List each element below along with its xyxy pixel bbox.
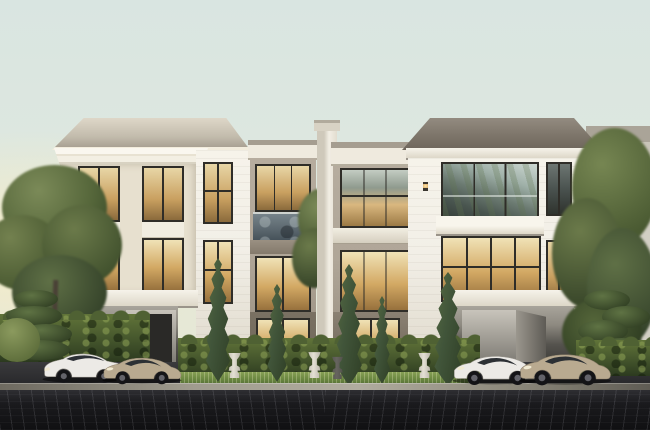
middle-right-two-storey-glazing <box>340 168 410 228</box>
sconce-light <box>423 184 428 188</box>
paver-joints-right <box>325 390 650 430</box>
bay-window-lower-right <box>142 238 184 292</box>
middle-right-band <box>333 228 413 244</box>
paver-joints-left <box>0 390 325 430</box>
left-house-roof <box>52 118 250 150</box>
wall-sconce <box>423 182 428 191</box>
right-house-cornice-band <box>436 216 544 236</box>
paver-driveway <box>0 390 650 430</box>
champagne-sports-car-left <box>100 346 184 386</box>
champagne-grand-tourer-right <box>516 342 614 386</box>
right-house-balcony-glazing <box>441 162 539 218</box>
chimney-cap <box>314 120 340 131</box>
bay-window-upper-right <box>142 166 184 222</box>
middle-left-unit-fascia <box>248 140 318 160</box>
bay-spandrel-right <box>142 222 184 238</box>
left-house-tall-window-upper <box>203 162 233 224</box>
architectural-rendering-scene <box>0 0 650 430</box>
glass-balustrade-rail <box>443 195 537 197</box>
middle-right-unit-fascia <box>331 142 415 166</box>
